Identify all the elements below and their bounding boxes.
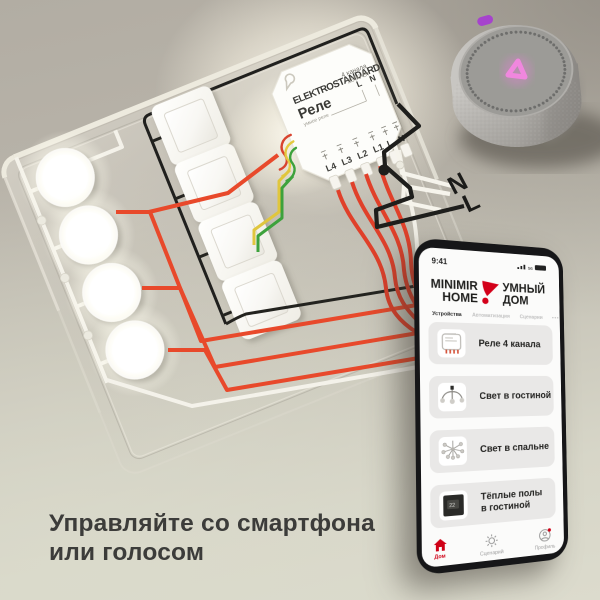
svg-text:22: 22 [449,502,456,509]
svg-text:ДОМ: ДОМ [503,293,529,307]
svg-text:L: L [458,187,484,219]
svg-text:HOME: HOME [442,290,478,305]
svg-text:56: 56 [528,266,533,271]
